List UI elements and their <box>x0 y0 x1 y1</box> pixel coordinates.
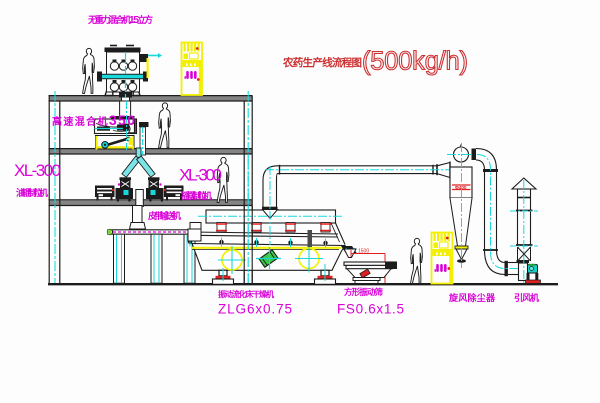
svg-text:油辊制粒机: 油辊制粒机 <box>16 187 48 198</box>
svg-text:振动流化床干燥机: 振动流化床干燥机 <box>218 289 274 299</box>
svg-text:Φ400: Φ400 <box>455 185 467 190</box>
svg-text:ZLG6x0.75: ZLG6x0.75 <box>218 302 292 317</box>
svg-text:旋风除尘器: 旋风除尘器 <box>448 292 496 303</box>
svg-text:引风机: 引风机 <box>514 292 539 303</box>
svg-text:摇摆制粒机: 摇摆制粒机 <box>181 190 212 201</box>
svg-text:XL-300: XL-300 <box>179 166 222 185</box>
svg-text:农药生产线流程图: 农药生产线流程图 <box>282 56 362 69</box>
svg-text:FS0.6x1.5: FS0.6x1.5 <box>337 302 404 317</box>
svg-text:(500kg/h): (500kg/h) <box>362 48 468 76</box>
svg-text:方形振动筛: 方形振动筛 <box>344 287 383 297</box>
svg-text:无重力混合机1.5 立方: 无重力混合机1.5 立方 <box>87 14 153 26</box>
svg-text:皮带输送机: 皮带输送机 <box>147 210 181 221</box>
svg-text:XL-300: XL-300 <box>14 161 61 180</box>
svg-text:1500: 1500 <box>358 249 369 255</box>
